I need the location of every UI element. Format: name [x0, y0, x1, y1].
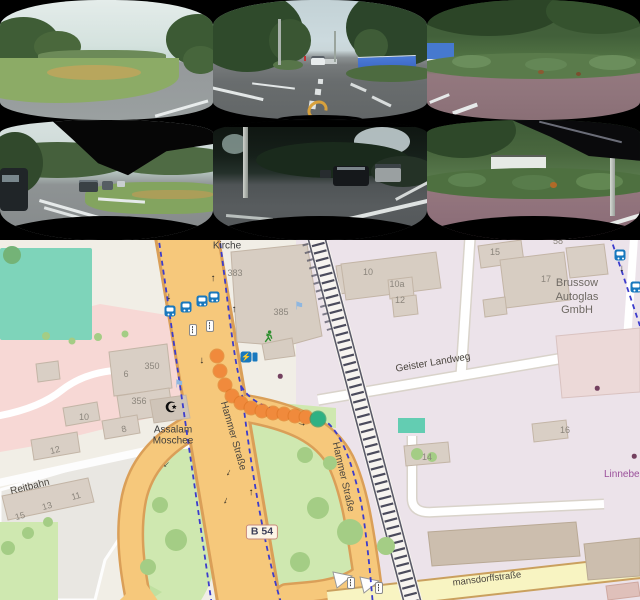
oneway-arrow-icon: ↑ [222, 494, 230, 505]
camera-back-left [0, 120, 213, 240]
route-end-dot [311, 412, 326, 427]
oneway-arrow-icon: ↑ [225, 466, 234, 477]
oneway-arrow-icon: ↑ [211, 274, 216, 284]
front-right-scene [427, 0, 640, 120]
vehicle [102, 181, 113, 189]
traffic-signal-icon [375, 582, 383, 594]
house-number-label: 10 [363, 267, 373, 277]
back-scene [213, 120, 426, 240]
oneway-arrow-icon: ↑ [200, 355, 205, 365]
bush-tuft [576, 173, 623, 190]
house-number-label: 11 [70, 490, 82, 502]
lane-marking [429, 93, 450, 104]
lane-marking [318, 79, 324, 84]
hood-silhouette [427, 216, 640, 240]
camera-front [213, 0, 426, 120]
front-scene [213, 0, 426, 120]
house-number-label: 17 [541, 274, 551, 284]
house-number-label: 15 [490, 247, 500, 257]
traffic-signal-icon [189, 324, 197, 336]
tree-canopy [427, 120, 517, 158]
lane-marking [350, 83, 367, 92]
camera-grid [0, 0, 640, 240]
label-kirche: Kirche [213, 241, 241, 252]
vehicle-ahead [311, 56, 325, 64]
label-brussow-line1: Brussow [556, 277, 598, 289]
lane-marking [314, 88, 321, 95]
house-number-label: 383 [227, 268, 242, 278]
house-number-label: 16 [560, 425, 570, 435]
bush-tuft [512, 175, 555, 189]
label-mosque-line1: Assalam [154, 425, 192, 436]
house-number-label: 13 [41, 500, 53, 512]
roof-edge [213, 120, 426, 127]
hedge [346, 65, 427, 82]
back-left-scene [0, 120, 213, 240]
camera-back-right [427, 120, 640, 240]
camera-front-left [0, 0, 213, 120]
tree-canopy [427, 0, 564, 36]
hood-silhouette [213, 216, 426, 240]
house-number-label: 12 [395, 295, 405, 305]
bus-stop-icon [631, 282, 640, 293]
poi-dot [278, 374, 283, 379]
hood-silhouette [0, 216, 213, 240]
parking-icon: ⚑ [174, 380, 184, 391]
label-linnebecke: Linnebe [604, 469, 640, 480]
house-number-label: 385 [273, 307, 288, 317]
traffic-signal-icon [347, 577, 355, 589]
vehicle [320, 170, 331, 177]
house-number-label: 350 [144, 361, 159, 371]
vehicle [375, 164, 401, 182]
poi-dot [595, 386, 600, 391]
house-number-label: 8 [120, 424, 127, 435]
house-number-label: 10a [389, 279, 404, 289]
charging-station-icon: ⚡ [241, 352, 252, 363]
oneway-arrow-icon: ↑ [167, 291, 172, 301]
road-edge-line [252, 83, 295, 90]
vehicle [79, 180, 98, 192]
tree-canopy [546, 0, 640, 34]
hedge-tuft [525, 58, 568, 71]
building-roofline [491, 155, 546, 158]
label-brussow-line2: Autoglas [556, 291, 599, 303]
map-canvas[interactable]: 3833853506356108121513111010a12151758141… [0, 240, 640, 600]
light-pole [243, 126, 248, 198]
route-ref-badge-b54: B 54 [246, 525, 278, 540]
bus-stop-icon [615, 250, 626, 261]
label-brussow-line3: GmbH [561, 304, 593, 316]
light-pole [334, 31, 336, 62]
house-number-label: 58 [553, 240, 563, 246]
bus-stop-icon [209, 292, 220, 303]
house-number-label: 14 [422, 452, 432, 462]
dry-grass-patch [132, 190, 213, 200]
oneway-arrow-icon: ↑ [232, 305, 237, 315]
road-sign [304, 56, 306, 61]
road-edge-line [213, 86, 264, 101]
front-left-scene [0, 0, 213, 120]
route-waypoint-dot [211, 350, 224, 363]
lane-marking [372, 95, 392, 107]
house-number-label: 6 [123, 369, 128, 379]
hedge-tuft [589, 55, 636, 69]
back-right-scene [427, 120, 640, 240]
bus-stop-icon [197, 296, 208, 307]
vehicle-window-glint [2, 175, 19, 182]
label-mosque-line2: Moschee [153, 436, 194, 447]
poi-dot [632, 454, 637, 459]
house-number-label: 15 [14, 510, 26, 522]
road-edge-line [154, 99, 208, 117]
bus-stop-icon [181, 302, 192, 313]
map-overlay-layer: 3833853506356108121513111010a12151758141… [0, 240, 640, 600]
lane-marking [452, 103, 477, 115]
house-number-label: 12 [49, 444, 61, 456]
vehicle-roof-glint [337, 167, 365, 171]
vehicle [117, 181, 124, 187]
bus-stop-icon [165, 306, 176, 317]
oneway-arrow-icon: ↑ [249, 488, 254, 498]
parking-icon: ⚑ [294, 302, 304, 313]
camera-front-right [427, 0, 640, 120]
house-number-label: 10 [79, 412, 89, 422]
oneway-arrow-icon: ↑ [620, 263, 625, 273]
tree-canopy [183, 46, 213, 75]
light-pole [278, 19, 281, 65]
traffic-signal-icon [206, 320, 214, 332]
oneway-arrow-icon: ↑ [162, 459, 173, 470]
mosque-icon: ☪ [165, 400, 178, 414]
house-number-label: 356 [131, 396, 146, 406]
screenshot-root: { "cameras": { "tiles": [ {"id": "front-… [0, 0, 640, 600]
camera-back [213, 120, 426, 240]
route-waypoint-dot [214, 365, 227, 378]
